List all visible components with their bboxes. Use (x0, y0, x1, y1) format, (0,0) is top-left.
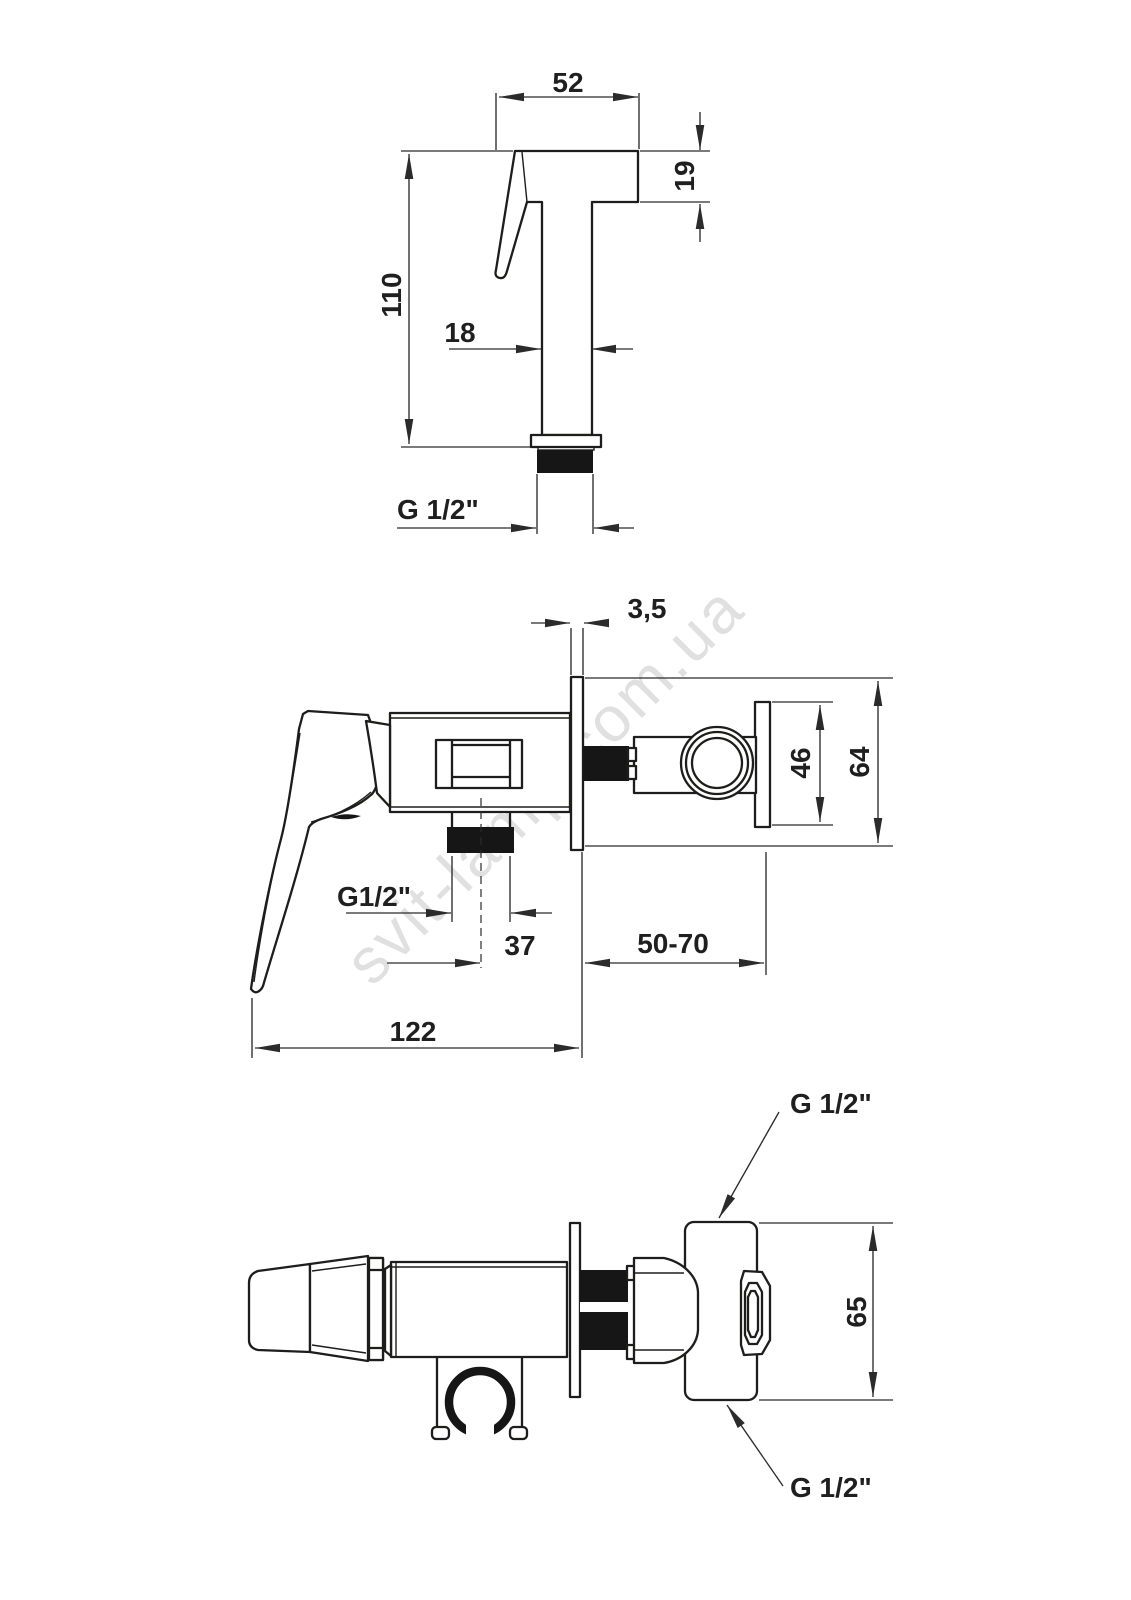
dim-total-length: 122 (252, 998, 579, 1058)
holder-foot-right (510, 1427, 527, 1439)
wall-pipe-thread (583, 746, 629, 781)
union-plate-side (755, 702, 770, 827)
dim-head-width: 52 (496, 67, 639, 150)
dim-stem-width: 18 (444, 317, 633, 349)
hand-shower-side-view: 52 19 110 18 G 1/2" (376, 67, 710, 534)
dim-label-19: 19 (669, 160, 700, 191)
collar (531, 435, 601, 447)
mixer-top-view: 65 G 1/2" G 1/2" (249, 1088, 893, 1503)
handle-knob-top (249, 1264, 310, 1352)
dim-head-height: 19 (640, 112, 710, 242)
dim-label-110: 110 (376, 272, 407, 317)
holder-bracket-side (436, 740, 522, 788)
dim-label-122: 122 (390, 1016, 437, 1047)
dim-label-46: 46 (785, 747, 816, 778)
pipe-connector-bottom (628, 766, 636, 779)
mixer-body-top (391, 1262, 567, 1357)
handle-grip-top (310, 1256, 368, 1361)
dim-union-plate-height: 46 (772, 702, 833, 825)
dim-union-height: 65 (759, 1223, 893, 1400)
escutcheon-plate-side (571, 677, 583, 850)
holder-foot-left (432, 1427, 449, 1439)
dim-label-64: 64 (844, 746, 875, 778)
dim-connection-thread: G 1/2" (397, 474, 634, 534)
dim-label-52: 52 (552, 67, 583, 98)
dim-label-g12-bottom: G 1/2" (790, 1472, 872, 1503)
cap-tab-top (369, 1258, 383, 1270)
leader-thread-top: G 1/2" (719, 1088, 872, 1218)
cap-tab-bottom (369, 1348, 383, 1360)
handle-neck-top (385, 1265, 391, 1356)
hand-shower-outline (496, 151, 639, 435)
mixer-side-view: 3,5 46 64 G1/2" 37 (251, 593, 893, 1058)
dim-label-50-70: 50-70 (637, 928, 709, 959)
pipe-highlight (580, 1302, 628, 1312)
escutcheon-plate-top (570, 1223, 580, 1397)
dim-label-18: 18 (444, 317, 475, 348)
dim-label-37: 37 (504, 930, 535, 961)
thread-side (537, 450, 593, 473)
thread-neck (538, 447, 594, 450)
shower-holder-top (432, 1357, 527, 1444)
dim-label-g12-top: G 1/2" (790, 1088, 872, 1119)
dim-label-65: 65 (841, 1296, 872, 1327)
dim-label-g12-outlet: G1/2" (337, 881, 411, 912)
fitting-fill (634, 1258, 698, 1363)
leader-thread-bottom: G 1/2" (727, 1405, 872, 1503)
pipe-connector-top (628, 748, 636, 761)
dim-label-g12-hand-shower: G 1/2" (397, 494, 479, 525)
dim-label-3-5: 3,5 (628, 593, 667, 624)
faucet-dimension-drawing: svit-lamp.com.ua 52 19 110 (0, 0, 1131, 1600)
handle-cap-top (369, 1258, 383, 1360)
holder-ring-gap (466, 1420, 494, 1444)
technical-drawing-page: svit-lamp.com.ua 52 19 110 (0, 0, 1131, 1600)
